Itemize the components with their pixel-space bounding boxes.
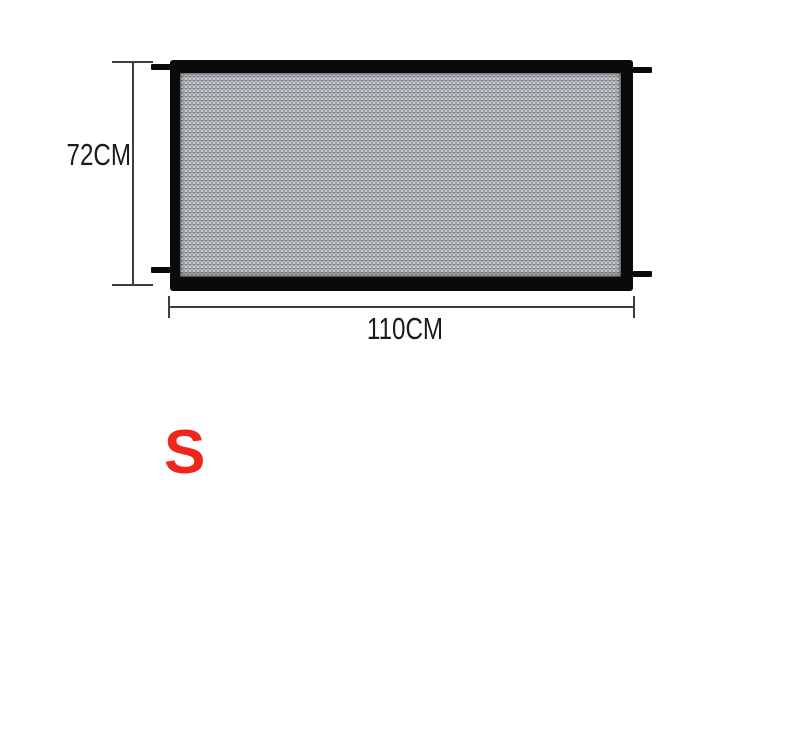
product-dimension-diagram: 72CM 110CM S: [0, 0, 787, 738]
width-dimension-line: [169, 306, 635, 308]
height-dimension-line: [132, 62, 134, 285]
mount-tab-top-left-icon: [151, 64, 172, 70]
mount-tab-bottom-left-icon: [151, 267, 172, 273]
mesh-gate-frame: [170, 60, 633, 291]
height-dimension-cap-top: [112, 61, 153, 63]
height-dimension-cap-bottom: [112, 284, 153, 286]
height-dimension-label: 72CM: [59, 139, 131, 170]
width-dimension-cap-left: [168, 296, 170, 318]
mesh-panel: [180, 73, 621, 277]
width-dimension-label: 110CM: [358, 313, 452, 344]
size-label: S: [164, 422, 205, 484]
mount-tab-bottom-right-icon: [631, 271, 652, 277]
mount-tab-top-right-icon: [631, 67, 652, 73]
width-dimension-cap-right: [633, 296, 635, 318]
